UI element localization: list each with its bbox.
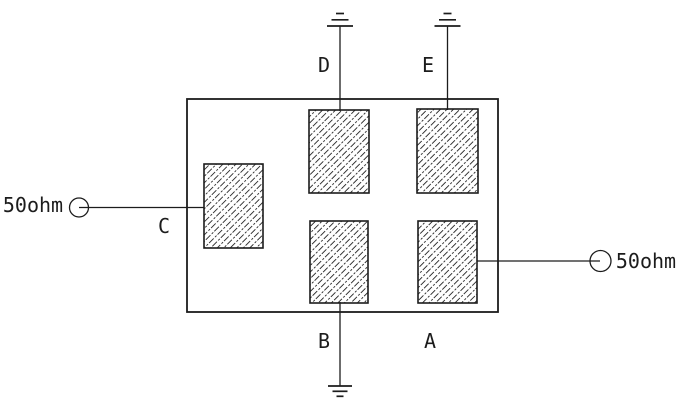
- electrode-label-c: C: [158, 216, 170, 236]
- electrode-label-b: B: [318, 331, 330, 351]
- schematic-canvas: 50ohm 50ohm C D E B A: [0, 0, 682, 408]
- electrode-label-e: E: [422, 55, 434, 75]
- electrode-a: [418, 221, 477, 303]
- electrode-c: [204, 164, 263, 248]
- right-terminal-label: 50ohm: [616, 251, 676, 271]
- electrode-b: [310, 221, 368, 303]
- left-terminal-label: 50ohm: [3, 195, 63, 215]
- electrode-label-d: D: [318, 55, 330, 75]
- electrode-label-a: A: [424, 331, 436, 351]
- ground-icon-d: [327, 14, 353, 27]
- electrode-e: [417, 109, 478, 193]
- schematic-drawing: [0, 0, 682, 408]
- electrode-d: [309, 110, 369, 193]
- ground-icon-b: [328, 386, 352, 396]
- ground-icon-e: [435, 14, 461, 27]
